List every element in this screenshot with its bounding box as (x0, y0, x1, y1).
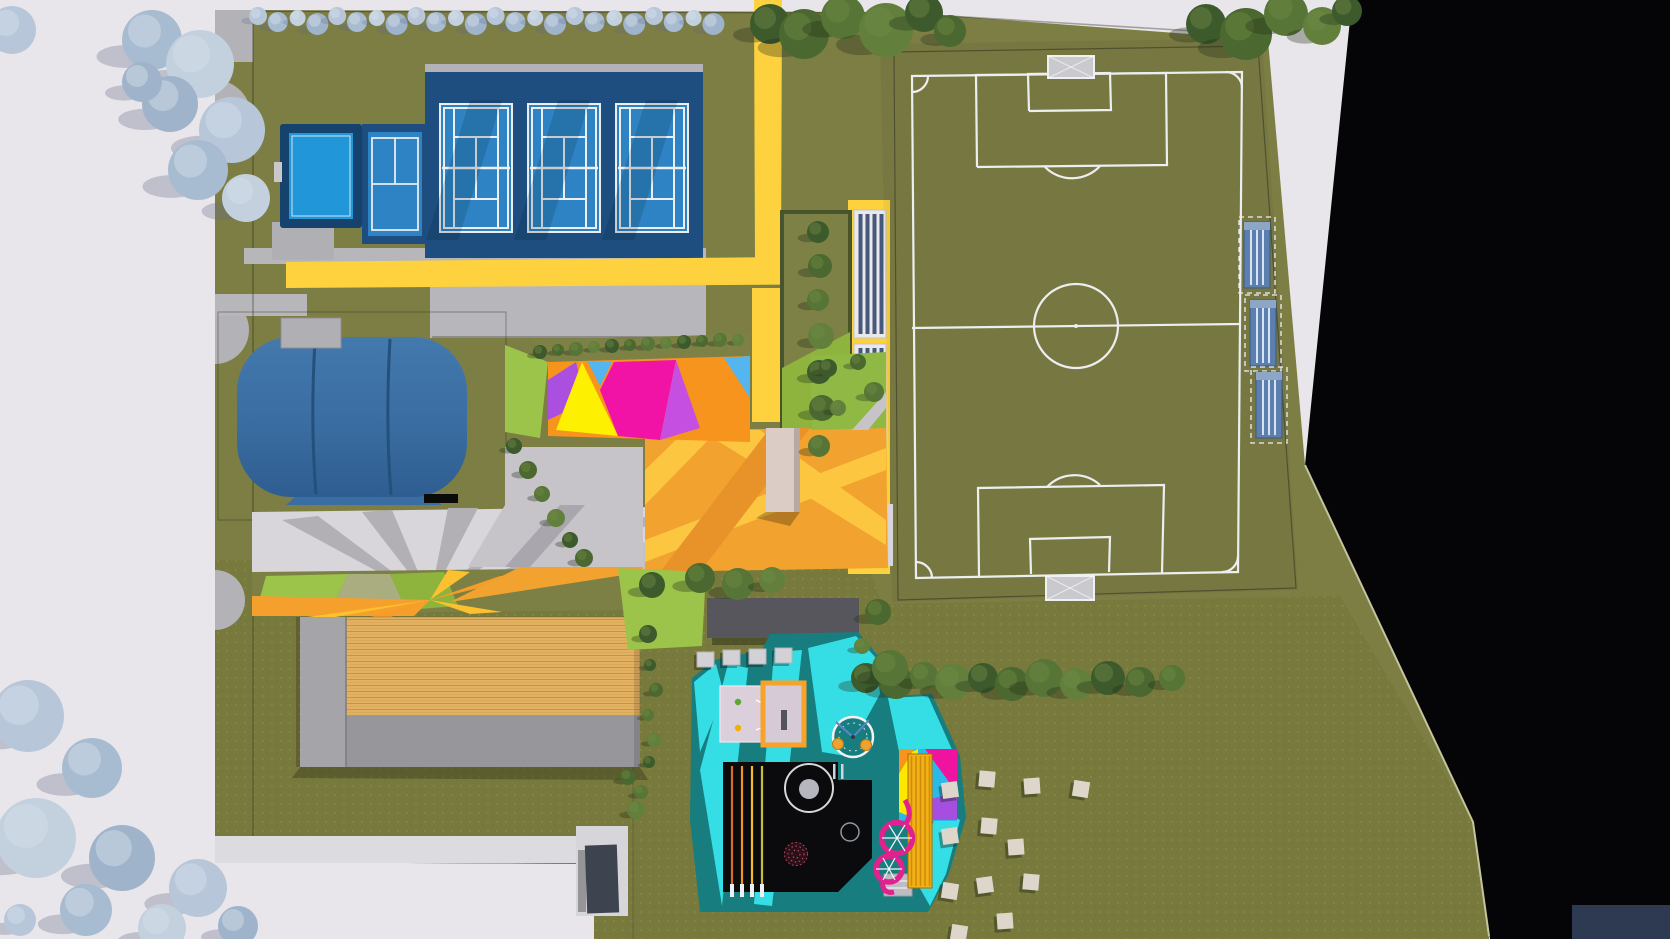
tree-highlight (648, 734, 656, 742)
tree-highlight (589, 342, 596, 349)
tree-highlight (173, 35, 210, 72)
tree-highlight (270, 14, 281, 25)
tree-highlight (688, 565, 705, 582)
tree-highlight (868, 601, 882, 615)
tree-highlight (428, 14, 439, 25)
tree-highlight (650, 684, 658, 692)
picnic-blanket (938, 781, 959, 802)
tree-highlight (687, 11, 696, 20)
tree-highlight (174, 145, 207, 178)
triangle-carpet (548, 356, 750, 442)
tree-highlight (866, 384, 877, 395)
tree-highlight (68, 743, 101, 776)
tree-highlight (1128, 669, 1145, 686)
south-walkway (215, 836, 595, 863)
tree-highlight (678, 336, 686, 344)
dugout (1239, 217, 1275, 293)
tree-highlight (762, 569, 776, 583)
tree-highlight (661, 338, 668, 345)
blanket (1022, 873, 1039, 890)
blanket (1023, 777, 1040, 794)
blanket (980, 817, 997, 834)
stepping-pad (749, 649, 766, 664)
blanket (1072, 780, 1090, 798)
tree-highlight (939, 667, 959, 687)
blanket (941, 827, 959, 845)
gray-roof (346, 716, 640, 767)
field-turf (880, 38, 1298, 602)
walkway-corridor (215, 294, 307, 316)
tree-highlight (570, 343, 578, 351)
tree-highlight (913, 664, 928, 679)
blanket (996, 912, 1013, 929)
tree-highlight (971, 665, 988, 682)
tree-highlight (625, 15, 637, 27)
navy-block-corner (1572, 905, 1670, 939)
goal-south (1046, 576, 1094, 600)
tree-highlight (227, 178, 253, 204)
tree-highlight (1094, 664, 1113, 683)
blanket (1007, 838, 1024, 855)
tree-highlight (507, 14, 518, 25)
dugout-cap (1244, 222, 1270, 230)
tree-highlight (388, 15, 400, 27)
tree-highlight (251, 8, 261, 18)
black-play-structure (723, 762, 872, 897)
tree-highlight (587, 14, 598, 25)
tree-highlight (625, 340, 632, 347)
building-west-wing (300, 617, 346, 767)
dugout (1245, 295, 1281, 371)
tree-highlight (568, 8, 578, 18)
soccer-field (880, 38, 1298, 602)
tree-highlight (643, 710, 650, 717)
blanket (941, 882, 959, 900)
tree-highlight (349, 14, 360, 25)
tree-highlight (811, 325, 825, 339)
tree-highlight (508, 439, 517, 448)
yellow-path-garden (752, 288, 782, 422)
site-plan-render (0, 0, 1670, 939)
dugout-cap (1250, 300, 1276, 308)
tree-highlight (536, 487, 545, 496)
aerial-masterplan-canvas (0, 0, 1670, 939)
tree-highlight (876, 653, 896, 673)
tree-highlight (0, 685, 39, 725)
tree-highlight (647, 8, 657, 18)
dome-entrance-box (281, 318, 341, 348)
tree-highlight (812, 397, 826, 411)
tree-highlight (725, 570, 743, 588)
dugout (1251, 367, 1287, 443)
tree-highlight (128, 15, 161, 48)
tree-highlight (529, 11, 538, 20)
tree-highlight (733, 335, 740, 342)
tree-highlight (330, 8, 340, 18)
tree-highlight (642, 574, 656, 588)
pool-steps (274, 162, 282, 182)
blanket (978, 770, 995, 787)
tree-highlight (1190, 7, 1212, 29)
concrete-apron (430, 284, 706, 338)
tree-highlight (645, 660, 652, 667)
tree-highlight (937, 17, 955, 35)
stepping-pad (697, 652, 714, 667)
building-edge (296, 617, 300, 767)
bleacher-segment (854, 210, 886, 338)
stepping-pad (723, 650, 740, 665)
tree-highlight (467, 15, 479, 27)
splash-pool (289, 133, 353, 219)
tree-highlight (309, 15, 321, 27)
stepping-pad (775, 648, 792, 663)
pergola-roof (707, 598, 859, 638)
tree-highlight (222, 909, 244, 931)
play-disc (799, 779, 819, 799)
court-shadows (426, 100, 678, 240)
container-shadow (578, 850, 586, 912)
tree-highlight (1162, 667, 1176, 681)
tree-highlight (521, 462, 531, 472)
tree-highlight (96, 830, 132, 866)
goal-north (1048, 56, 1094, 78)
dugout-cap (1256, 372, 1282, 380)
tree-highlight (175, 863, 207, 895)
tree-highlight (810, 437, 822, 449)
tree-highlight (622, 770, 631, 779)
tree-highlight (126, 65, 148, 87)
tree-highlight (577, 550, 587, 560)
tree-highlight (852, 355, 861, 364)
tree-highlight (534, 346, 542, 354)
tree-highlight (705, 15, 717, 27)
tree-highlight (641, 626, 651, 636)
tree-highlight (488, 8, 498, 18)
tree-highlight (370, 11, 379, 20)
picnic-blanket (938, 827, 959, 848)
tree-highlight (1029, 662, 1050, 683)
kiosk-edge (794, 428, 800, 512)
building-shadow (292, 767, 648, 780)
tree-highlight (450, 11, 459, 20)
tree-highlight (635, 786, 643, 794)
tree-highlight (7, 906, 25, 924)
tree-highlight (291, 11, 300, 20)
sandbox (763, 683, 804, 745)
tree-highlight (810, 256, 823, 269)
tree-highlight (642, 338, 650, 346)
tree-highlight (809, 291, 821, 303)
blanket (976, 876, 994, 894)
carousel (833, 717, 874, 757)
picnic-blanket (937, 881, 959, 903)
dome-vent (424, 494, 458, 503)
tree-highlight (856, 639, 865, 648)
tree-highlight (553, 345, 560, 352)
tree-highlight (143, 908, 169, 934)
tree-highlight (4, 804, 48, 848)
tree-highlight (608, 11, 617, 20)
storage-container (585, 844, 619, 913)
clubhouse-building (292, 617, 648, 780)
tree-highlight (606, 340, 614, 348)
tree-highlight (697, 336, 704, 343)
tree-highlight (714, 334, 722, 342)
tree-highlight (546, 15, 558, 27)
tree-highlight (629, 802, 639, 812)
tree-highlight (409, 8, 419, 18)
blanket (950, 924, 968, 939)
tree-highlight (821, 360, 831, 370)
tree-highlight (564, 533, 573, 542)
wood-roof (346, 617, 640, 717)
tree-highlight (809, 223, 821, 235)
tree-highlight (754, 7, 776, 29)
center-spot (1074, 324, 1078, 328)
tree-highlight (65, 888, 94, 917)
tree-highlight (666, 14, 677, 25)
blanket (941, 781, 959, 799)
tree-highlight (206, 102, 242, 138)
picnic-blanket (973, 876, 994, 897)
tree-highlight (549, 510, 559, 520)
tree-highlight (644, 757, 651, 764)
tree-highlight (832, 401, 841, 410)
air-dome (237, 337, 467, 497)
picnic-blanket (1068, 779, 1090, 801)
